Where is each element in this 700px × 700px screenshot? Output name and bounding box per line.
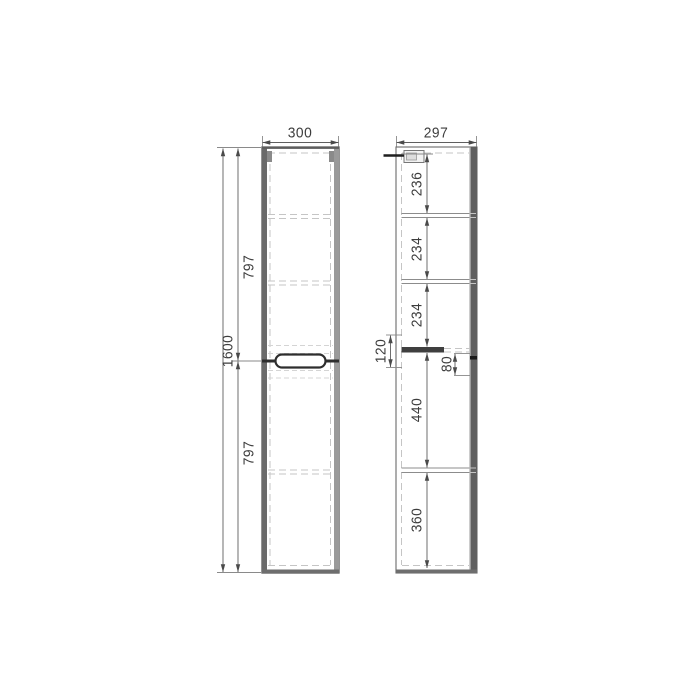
dim-side-depth: 297 [424,126,448,141]
front-view [262,147,339,574]
side-bottom-edge [396,570,477,574]
dim-side-section-second: 234 [410,237,425,261]
dim-side-handle-zone: 120 [374,339,389,363]
side-middle-rail [402,347,445,353]
dim-side-section-bottom: 360 [410,508,425,532]
front-top-edge [262,147,339,149]
dim-front-upper-door: 797 [242,255,257,279]
side-view [384,147,478,573]
hinge-mark-right [329,151,334,162]
door-handle [276,355,326,368]
dim-side-section-top: 236 [410,172,425,196]
dim-side-handle-recess: 80 [440,356,455,372]
dim-front-lower-door: 797 [242,441,257,465]
dim-side-section-third: 234 [410,303,425,327]
side-door-edge [471,147,477,573]
wall-bracket [384,151,425,163]
front-bottom-edge [262,570,339,574]
hinge-mark-left [267,151,272,162]
drawing-sheet: 300 1600 797 797 297 236 234 234 120 80 … [0,0,700,700]
dim-side-section-fourth: 440 [410,398,425,422]
side-handle-notch [470,356,477,360]
technical-drawing [0,0,700,700]
dim-front-total-height: 1600 [221,335,236,368]
dim-front-width: 300 [288,126,312,141]
